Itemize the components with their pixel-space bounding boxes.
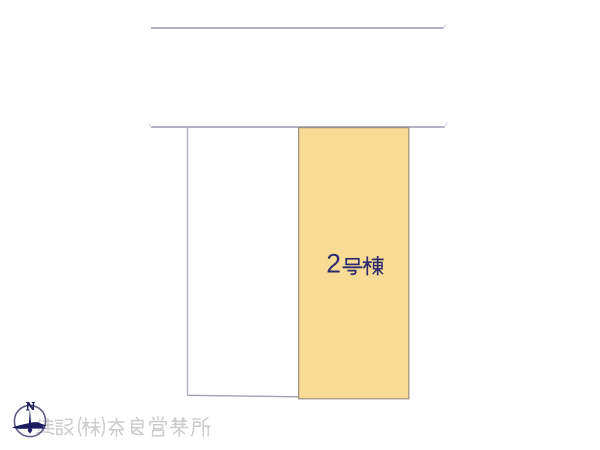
svg-text:2: 2 bbox=[326, 248, 341, 278]
